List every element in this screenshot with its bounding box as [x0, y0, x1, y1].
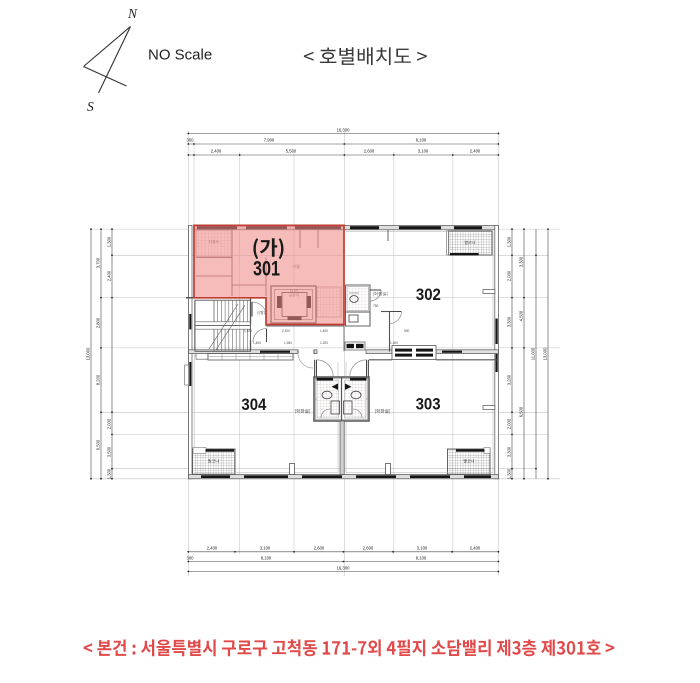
svg-text:3,300: 3,300 [507, 446, 512, 457]
svg-text:301: 301 [253, 258, 280, 281]
svg-text:302: 302 [416, 285, 441, 304]
svg-text:13,000: 13,000 [86, 347, 91, 360]
svg-text:2,400: 2,400 [470, 149, 481, 154]
svg-text:1,300: 1,300 [107, 236, 112, 247]
svg-text:2,600: 2,600 [364, 149, 375, 154]
svg-text:NO Scale: NO Scale [148, 47, 212, 64]
svg-text:3,200: 3,200 [507, 374, 512, 385]
svg-text:5,500: 5,500 [286, 149, 297, 154]
svg-text:2,400: 2,400 [211, 149, 222, 154]
svg-text:2,400: 2,400 [470, 546, 481, 551]
svg-text:300: 300 [187, 556, 195, 561]
svg-text:1,300: 1,300 [507, 468, 512, 479]
svg-text:6,500: 6,500 [519, 406, 524, 417]
svg-text:1,300: 1,300 [390, 341, 398, 345]
svg-text:900: 900 [404, 329, 410, 333]
svg-text:8,100: 8,100 [416, 138, 427, 143]
svg-text:16,300: 16,300 [337, 566, 350, 571]
svg-text:2,000: 2,000 [107, 418, 112, 429]
svg-text:2,000: 2,000 [507, 418, 512, 429]
svg-text:1,300: 1,300 [107, 468, 112, 479]
svg-text:1,200: 1,200 [320, 341, 328, 345]
svg-text:16,300: 16,300 [337, 128, 350, 133]
svg-text:2,600: 2,600 [363, 546, 374, 551]
svg-text:3,100: 3,100 [418, 149, 429, 154]
svg-text:3,300: 3,300 [519, 256, 524, 267]
svg-text:1,300: 1,300 [507, 236, 512, 247]
svg-text:8,100: 8,100 [416, 556, 427, 561]
svg-text:2,400: 2,400 [107, 270, 112, 281]
svg-text:8,200: 8,200 [96, 374, 101, 385]
svg-text:7,900: 7,900 [264, 138, 275, 143]
svg-text:304: 304 [241, 395, 266, 414]
svg-text:1,400: 1,400 [253, 341, 261, 345]
svg-text:3,100: 3,100 [417, 546, 428, 551]
svg-text:2,800: 2,800 [96, 317, 101, 328]
svg-text:3,100: 3,100 [260, 546, 271, 551]
svg-text:303: 303 [416, 395, 441, 414]
svg-text:2,100: 2,100 [282, 329, 290, 333]
svg-text:1,100: 1,100 [244, 329, 252, 333]
svg-text:6,500: 6,500 [96, 439, 101, 450]
svg-text:2,600: 2,600 [314, 546, 325, 551]
svg-text:S: S [87, 99, 94, 114]
svg-text:300: 300 [187, 138, 195, 143]
svg-text:750: 750 [373, 304, 379, 308]
svg-text:3,700: 3,700 [96, 257, 101, 268]
svg-text:3,500: 3,500 [107, 446, 112, 457]
svg-text:13,000: 13,000 [543, 347, 548, 360]
svg-text:8,100: 8,100 [261, 556, 272, 561]
svg-text:11,000: 11,000 [531, 347, 536, 360]
svg-text:2,400: 2,400 [207, 546, 218, 551]
svg-text:3,300: 3,300 [507, 316, 512, 327]
svg-text:N: N [127, 6, 138, 21]
svg-text:1,350: 1,350 [284, 341, 292, 345]
svg-text:4,500: 4,500 [519, 310, 524, 321]
svg-text:2,000: 2,000 [507, 270, 512, 281]
svg-text:1,400: 1,400 [320, 329, 328, 333]
